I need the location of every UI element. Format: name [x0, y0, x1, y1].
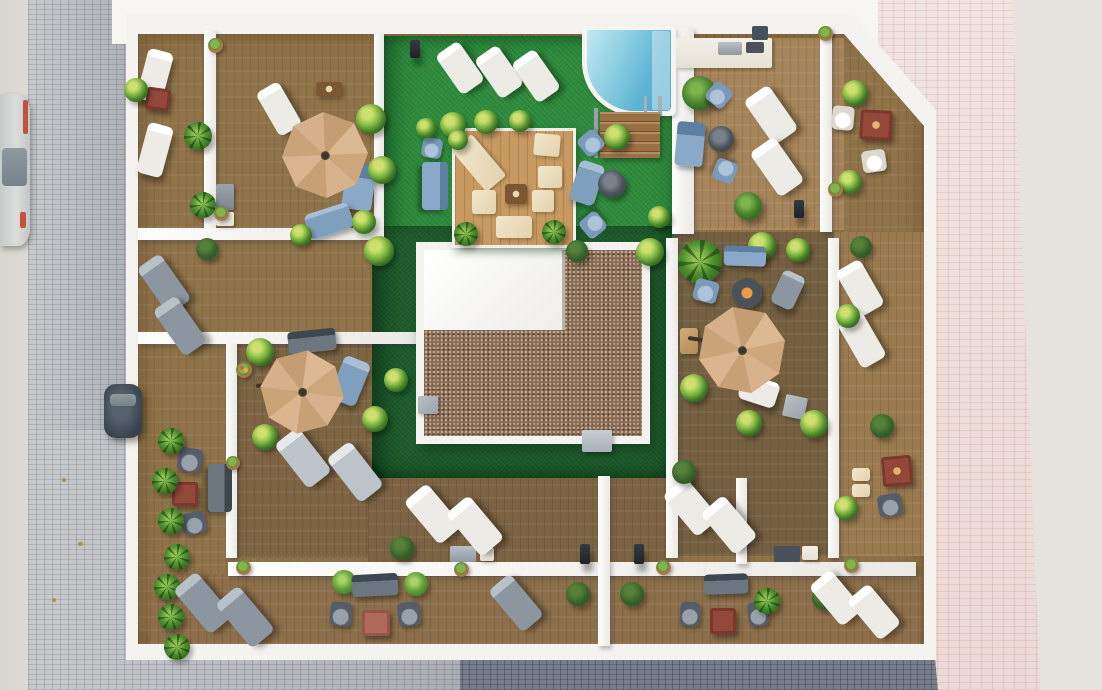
armchair	[329, 601, 353, 627]
tree	[734, 192, 762, 220]
privacy-wall	[598, 476, 610, 646]
seat-cushion	[852, 484, 870, 497]
sofa	[351, 573, 398, 597]
flower-pot	[236, 560, 251, 575]
bush	[850, 236, 872, 258]
patio-heater	[794, 200, 804, 218]
plant	[368, 156, 396, 184]
sofa	[704, 573, 749, 595]
sofa	[208, 464, 232, 512]
plant	[800, 410, 828, 438]
fire-bowl	[732, 278, 762, 308]
leaf	[62, 478, 66, 482]
plant	[124, 78, 148, 102]
plant	[836, 304, 860, 328]
lounge-mat	[496, 216, 532, 238]
privacy-wall	[228, 562, 916, 576]
side-table	[145, 86, 172, 111]
bush	[620, 582, 644, 606]
bush	[566, 240, 588, 262]
outdoor-counter	[802, 546, 818, 560]
plant	[356, 104, 386, 134]
side-table	[316, 82, 342, 96]
floor-cushion	[538, 166, 562, 188]
privacy-wall	[820, 34, 832, 232]
plant	[834, 496, 858, 520]
floor-cushion	[533, 133, 561, 157]
coffee-table	[505, 184, 527, 204]
sofa	[674, 121, 706, 167]
flower-pot	[828, 182, 843, 197]
plant	[636, 238, 664, 266]
coffee-table	[362, 610, 390, 636]
core-white-roof	[424, 250, 564, 330]
coffee-table	[710, 608, 736, 634]
bbq-grill	[774, 546, 800, 562]
palm	[542, 220, 566, 244]
car-windshield	[2, 148, 27, 186]
fire-table	[859, 109, 893, 141]
plant	[509, 110, 531, 132]
plant	[648, 206, 670, 228]
flower-pot	[656, 560, 671, 575]
armchair	[876, 492, 903, 518]
bbq-grill	[752, 26, 768, 40]
plant	[246, 338, 274, 366]
palm	[190, 192, 216, 218]
plant	[352, 210, 376, 234]
armchair	[679, 601, 701, 627]
bush	[566, 582, 590, 606]
flower-pot	[214, 206, 229, 221]
flower-pot	[844, 558, 859, 573]
bush	[672, 460, 696, 484]
service-hatch	[582, 430, 612, 452]
flower-pot	[236, 362, 252, 378]
palm	[164, 544, 190, 570]
fire-pit-table	[598, 170, 626, 198]
patio-heater	[410, 40, 420, 58]
car-windshield	[110, 394, 136, 406]
fern	[404, 572, 428, 596]
armchair	[176, 446, 204, 474]
parked-car	[104, 384, 142, 438]
roof-seam	[562, 250, 565, 330]
sink	[718, 42, 742, 55]
sofa	[724, 245, 767, 266]
armchair	[861, 148, 888, 173]
plant	[448, 130, 468, 150]
fire-table	[881, 455, 914, 488]
bush	[196, 238, 218, 260]
sofa	[422, 162, 448, 210]
seat-cushion	[852, 468, 870, 481]
plant	[290, 224, 312, 246]
plant	[416, 118, 436, 138]
flower-pot	[818, 26, 833, 41]
bush	[390, 536, 414, 560]
car-taillight	[23, 100, 28, 134]
palm	[184, 122, 212, 150]
palm	[152, 468, 178, 494]
plant	[680, 374, 708, 402]
flower-pot	[454, 562, 469, 577]
palm	[754, 588, 780, 614]
flower-pot	[208, 38, 223, 53]
plant	[604, 124, 630, 150]
floor-cushion	[472, 190, 496, 214]
palm	[158, 508, 184, 534]
plant	[736, 410, 762, 436]
leaf	[78, 542, 83, 546]
step-mat	[418, 396, 438, 414]
plant	[362, 406, 388, 432]
counter-appliance	[746, 42, 764, 53]
rooftop-aerial-render	[0, 0, 1102, 690]
floor-cushion	[532, 190, 554, 212]
patio-heater	[580, 544, 590, 564]
armchair	[831, 105, 855, 131]
bush	[870, 414, 894, 438]
palm	[158, 428, 184, 454]
palm	[454, 222, 478, 246]
patio-heater	[634, 544, 644, 564]
plant	[384, 368, 408, 392]
plant	[474, 110, 498, 134]
bbq-grill	[450, 546, 476, 562]
car-taillight	[20, 212, 26, 228]
privacy-wall	[226, 344, 237, 558]
plant	[364, 236, 394, 266]
plant	[252, 424, 278, 450]
fire-pit-table	[708, 126, 734, 152]
plant	[786, 238, 810, 262]
leaf	[52, 598, 56, 602]
privacy-wall	[138, 228, 384, 240]
palm	[164, 634, 190, 660]
plant	[842, 80, 868, 106]
armchair	[397, 601, 421, 627]
armchair	[420, 136, 443, 159]
flower-pot	[226, 456, 240, 470]
palm	[158, 604, 184, 630]
